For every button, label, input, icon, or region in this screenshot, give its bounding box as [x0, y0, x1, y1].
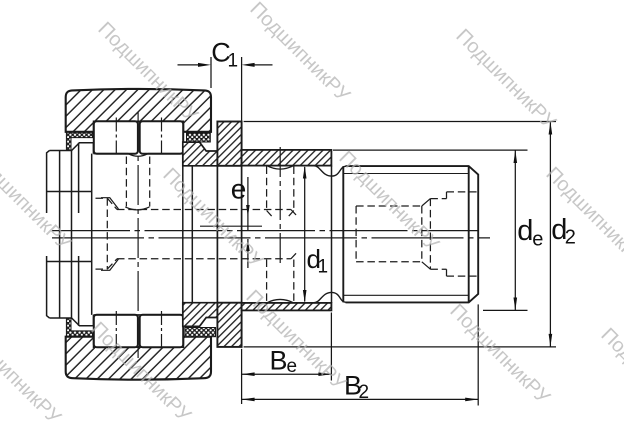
svg-text:ПодшипникРУ: ПодшипникРУ	[445, 300, 554, 409]
svg-text:ПодшипникРУ: ПодшипникРУ	[158, 164, 267, 273]
svg-text:e: e	[287, 356, 298, 377]
svg-text:2: 2	[359, 382, 370, 403]
svg-text:ПодшипникРУ: ПодшипникРУ	[0, 320, 65, 429]
svg-text:2: 2	[565, 227, 576, 249]
svg-text:ПодшипникРУ: ПодшипникРУ	[245, 0, 354, 107]
svg-text:e: e	[532, 229, 543, 251]
svg-text:B: B	[270, 346, 288, 376]
svg-text:ПодшипникРУ: ПодшипникРУ	[0, 146, 75, 255]
svg-text:ПодшипникРУ: ПодшипникРУ	[596, 324, 624, 433]
svg-text:e: e	[231, 174, 247, 205]
svg-text:d: d	[517, 215, 533, 247]
svg-text:ПодшипникРУ: ПодшипникРУ	[451, 25, 560, 134]
svg-text:1: 1	[318, 256, 329, 277]
svg-text:1: 1	[228, 51, 239, 72]
